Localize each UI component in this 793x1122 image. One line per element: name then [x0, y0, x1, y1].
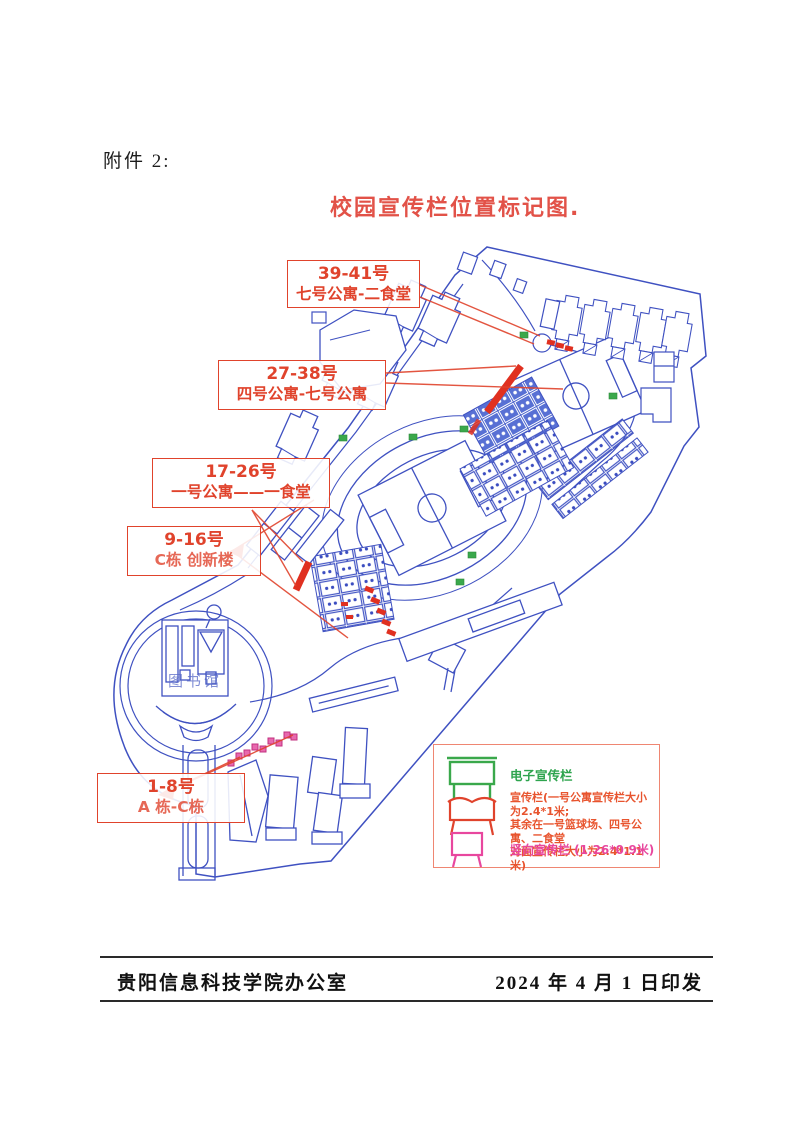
- annotation-box-9-16: 9-16号 C栋 创新楼: [127, 526, 261, 576]
- legend-electronic-label: 电子宣传栏: [510, 765, 573, 784]
- document-page: 附件 2: 校园宣传栏位置标记图.: [0, 0, 793, 1122]
- campus-map-drawing: 图书馆: [0, 0, 793, 1122]
- legend-standard-text: 宣传栏(一号公寓宣传栏大小为2.4*1米; 其余在一号篮球场、四号公寓、二食堂 …: [510, 791, 658, 872]
- annotation-location: 四号公寓-七号公寓: [219, 385, 385, 404]
- vertical-board-icon: [446, 831, 490, 869]
- library-label: 图书馆: [168, 672, 222, 690]
- annotation-box-17-26: 17-26号 一号公寓——一食堂: [152, 458, 330, 508]
- annotation-location: C栋 创新楼: [128, 551, 260, 570]
- annotation-location: A 栋-C栋: [98, 798, 244, 817]
- legend-standard-line1: 宣传栏(一号公寓宣传栏大小为2.4*1米;: [510, 791, 658, 818]
- issue-date: 2024 年 4 月 1 日印发: [495, 968, 713, 995]
- annotation-box-1-8: 1-8号 A 栋-C栋: [97, 773, 245, 823]
- annotation-location: 七号公寓-二食堂: [288, 285, 419, 304]
- annotation-range: 9-16号: [128, 530, 260, 551]
- legend-vertical-label: 竖向宣传栏 (1.26*0.9米): [510, 841, 654, 858]
- annotation-range: 27-38号: [219, 364, 385, 385]
- footer: 贵阳信息科技学院办公室 2024 年 4 月 1 日印发: [100, 962, 713, 1000]
- annotation-box-27-38: 27-38号 四号公寓-七号公寓: [218, 360, 386, 410]
- annotation-location: 一号公寓——一食堂: [153, 483, 329, 502]
- footer-bottom-rule: [100, 1000, 713, 1002]
- annotation-range: 39-41号: [288, 264, 419, 285]
- footer-top-rule: [100, 956, 713, 958]
- annotation-box-39-41: 39-41号 七号公寓-二食堂: [287, 260, 420, 308]
- annotation-range: 17-26号: [153, 462, 329, 483]
- annotation-range: 1-8号: [98, 777, 244, 798]
- map-legend: 电子宣传栏 宣传栏(一号公寓宣传栏大小为2.4*1米; 其余在一号篮球场、四号公…: [433, 744, 660, 868]
- issuing-office: 贵阳信息科技学院办公室: [100, 968, 348, 995]
